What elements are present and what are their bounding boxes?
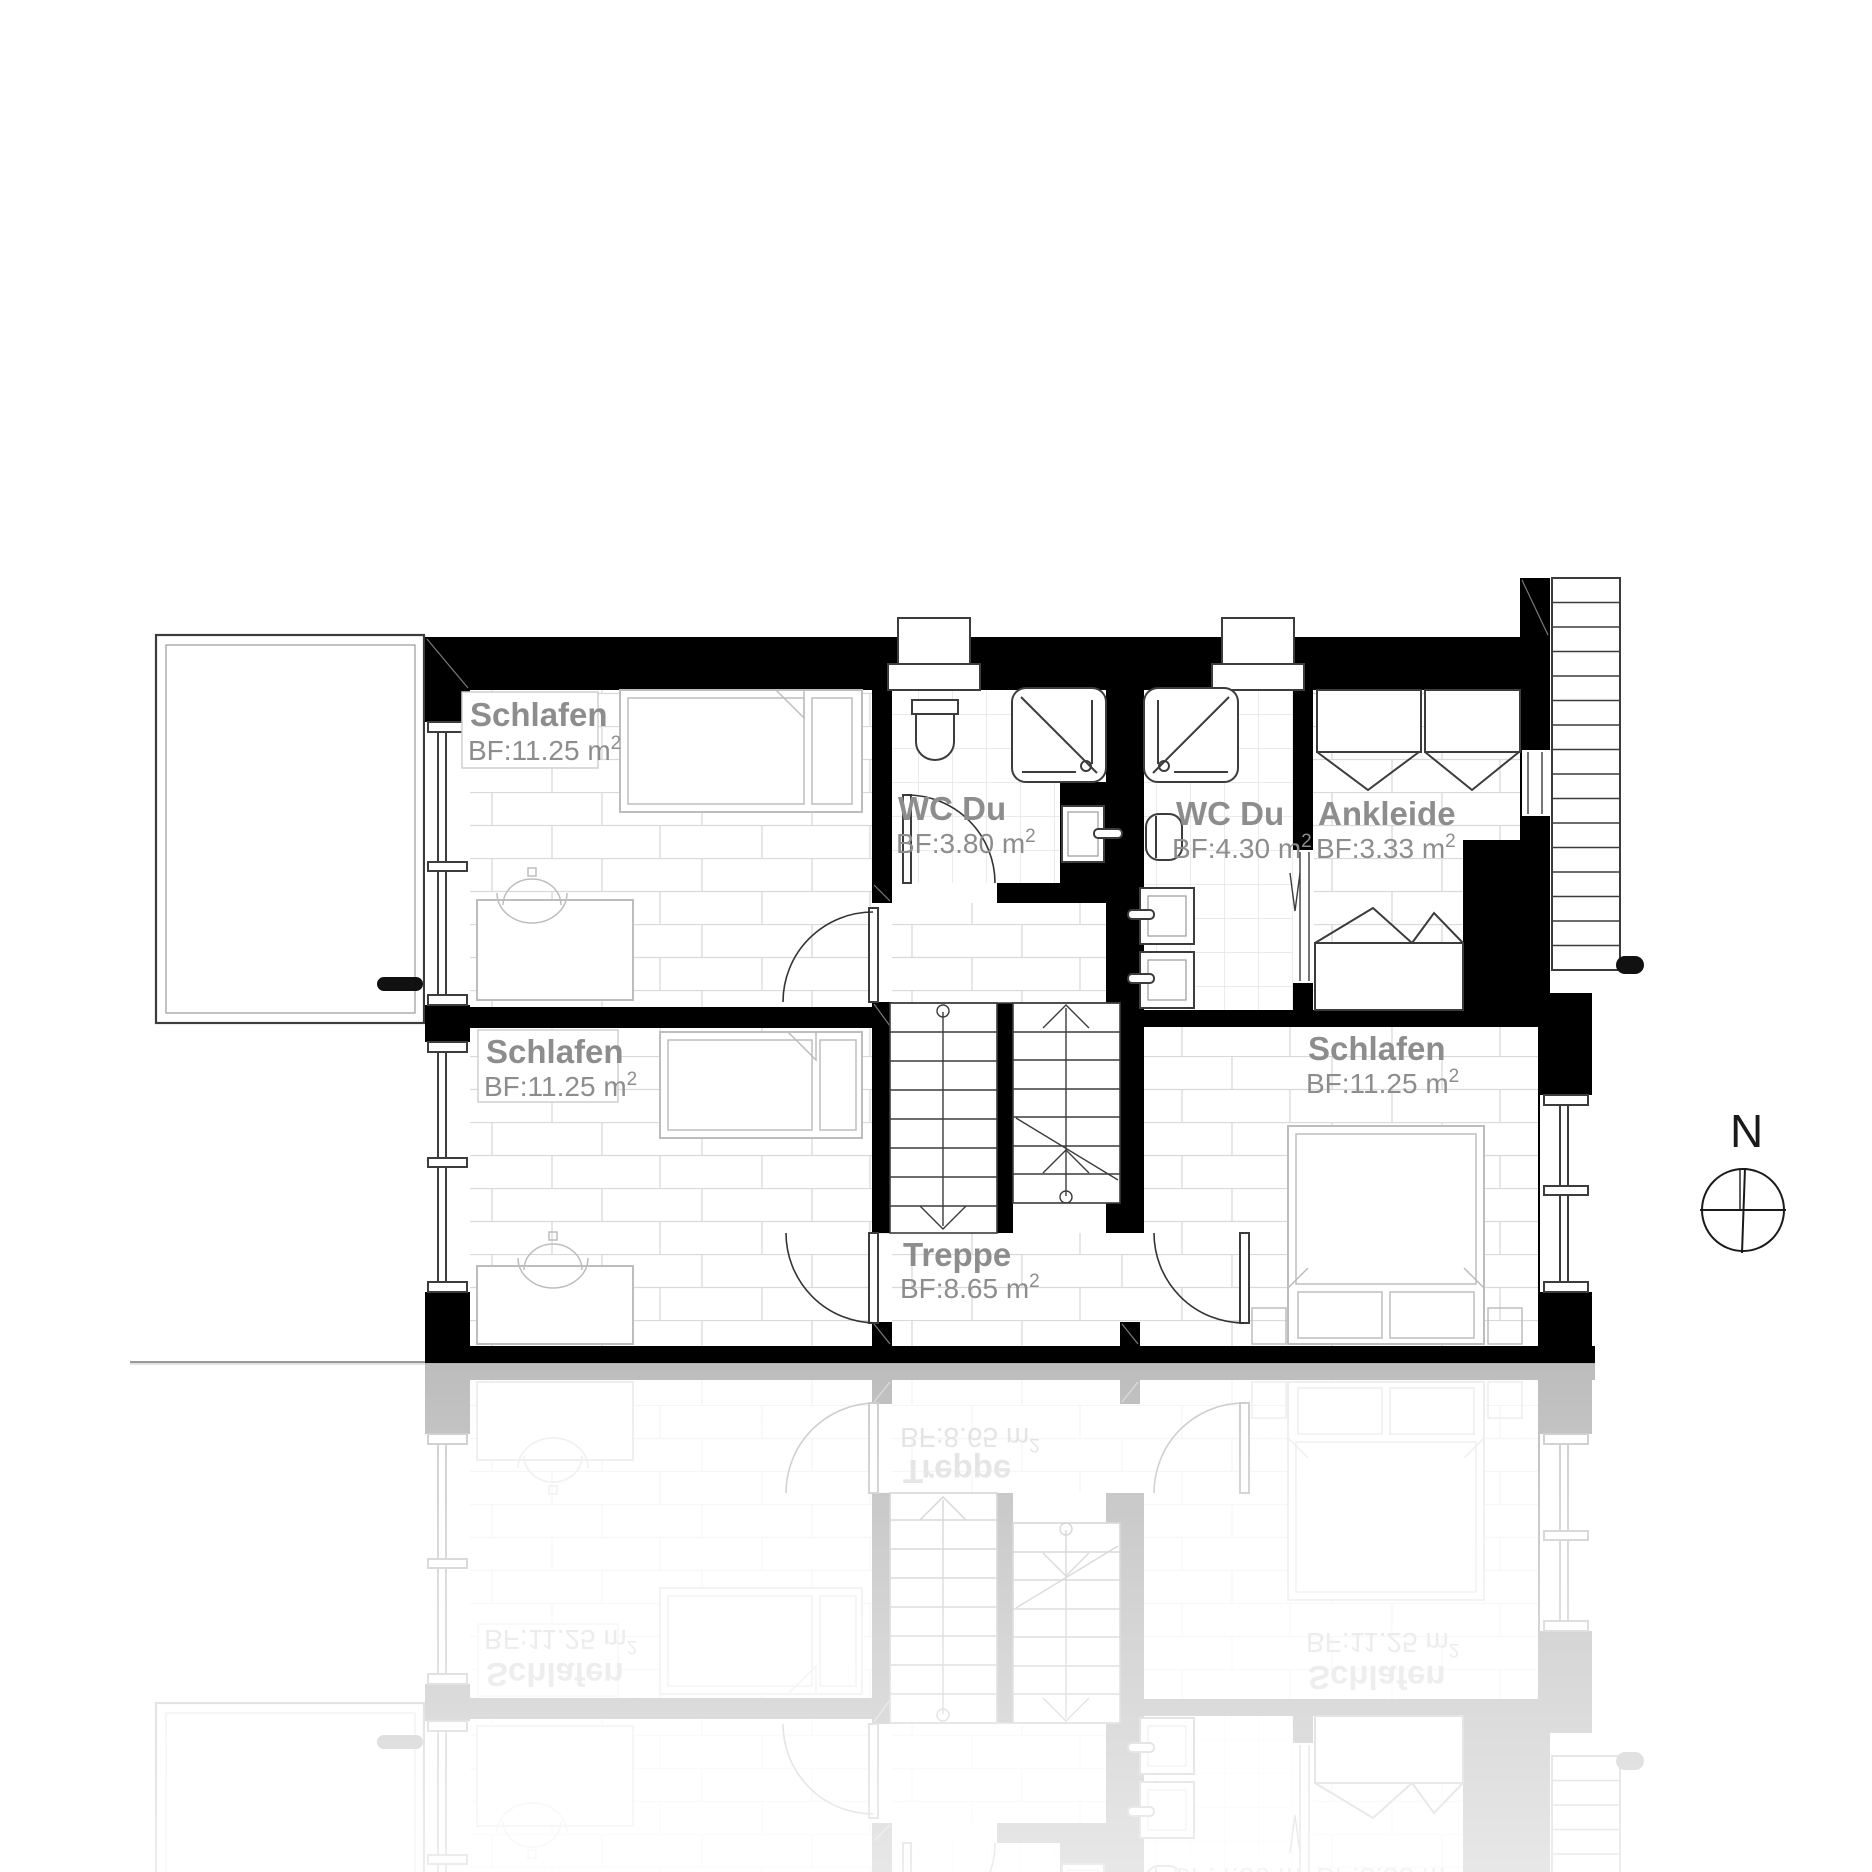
room-name: WC Du (898, 790, 1006, 827)
floor-plan-svg: Schlafen BF:11.25 m2 Schlafen BF:11.25 m… (0, 0, 1872, 1872)
room-area: BF:11.25 m2 (468, 733, 621, 766)
balcony (156, 635, 424, 1023)
balcony-door-handle-icon (377, 977, 423, 991)
door-ankleide-sliding (1290, 850, 1314, 983)
room-area: BF:11.25 m2 (484, 1069, 637, 1102)
reflection-fade (0, 1364, 1872, 1872)
door-to-exterior-stair (1522, 750, 1550, 816)
room-name: WC Du (1176, 795, 1284, 832)
stair-flight-down (890, 1003, 997, 1233)
room-label-schlafen-bl: Schlafen BF:11.25 m2 (478, 1030, 637, 1102)
wall-north (425, 637, 1550, 690)
floor-plan-canvas: Schlafen BF:11.25 m2 Schlafen BF:11.25 m… (0, 0, 1872, 1872)
window-north-1 (888, 618, 980, 690)
room-name: Schlafen (1308, 1030, 1446, 1067)
room-name: Schlafen (470, 696, 608, 733)
room-area: BF:3.80 m2 (896, 826, 1036, 859)
bed-single-bl (660, 1032, 862, 1138)
window-north-2 (1212, 618, 1304, 690)
wall-stair-divider (997, 1003, 1013, 1233)
wall-post-ankleide (1293, 983, 1313, 1010)
wall-duct-block (1463, 840, 1538, 1010)
exterior-stair (1552, 578, 1644, 974)
north-compass: N (1700, 1105, 1786, 1253)
room-name: Schlafen (486, 1033, 624, 1070)
wall-wc-ost-ankleide (1293, 687, 1313, 850)
wall-ankleide-schlafen-br (1137, 1010, 1538, 1027)
compass-n-label: N (1730, 1105, 1763, 1157)
wall-between-left-bedrooms (425, 1007, 872, 1028)
shower-icon (1144, 688, 1238, 782)
room-label-schlafen-tl: Schlafen BF:11.25 m2 (462, 692, 621, 768)
room-area: BF:3.33 m2 (1316, 831, 1456, 864)
floor-landing (892, 903, 1106, 1003)
room-area: BF:11.25 m2 (1306, 1066, 1459, 1099)
wall-schlafen-bl-east (872, 1028, 892, 1233)
window-east (1540, 1095, 1592, 1292)
wall-schlafen-tl-east (872, 690, 892, 903)
bed-single-tl (620, 690, 862, 812)
stair-handle-icon (1616, 956, 1644, 974)
room-area: BF:4.30 m2 (1172, 831, 1312, 864)
shower-icon (1012, 688, 1106, 782)
room-name: Treppe (903, 1236, 1011, 1273)
stair-flight-up (1013, 1003, 1120, 1203)
toilet-icon (912, 700, 958, 760)
floor-plan: Schlafen BF:11.25 m2 Schlafen BF:11.25 m… (130, 578, 1644, 1363)
room-area: BF:8.65 m2 (900, 1271, 1040, 1304)
window-west-lower (425, 1042, 470, 1292)
room-name: Ankleide (1318, 795, 1456, 832)
room-label-schlafen-br: Schlafen BF:11.25 m2 (1306, 1030, 1459, 1099)
wall-south (425, 1346, 1595, 1363)
bed-double-br (1252, 1126, 1522, 1344)
room-label-ankleide: Ankleide BF:3.33 m2 (1316, 795, 1456, 864)
